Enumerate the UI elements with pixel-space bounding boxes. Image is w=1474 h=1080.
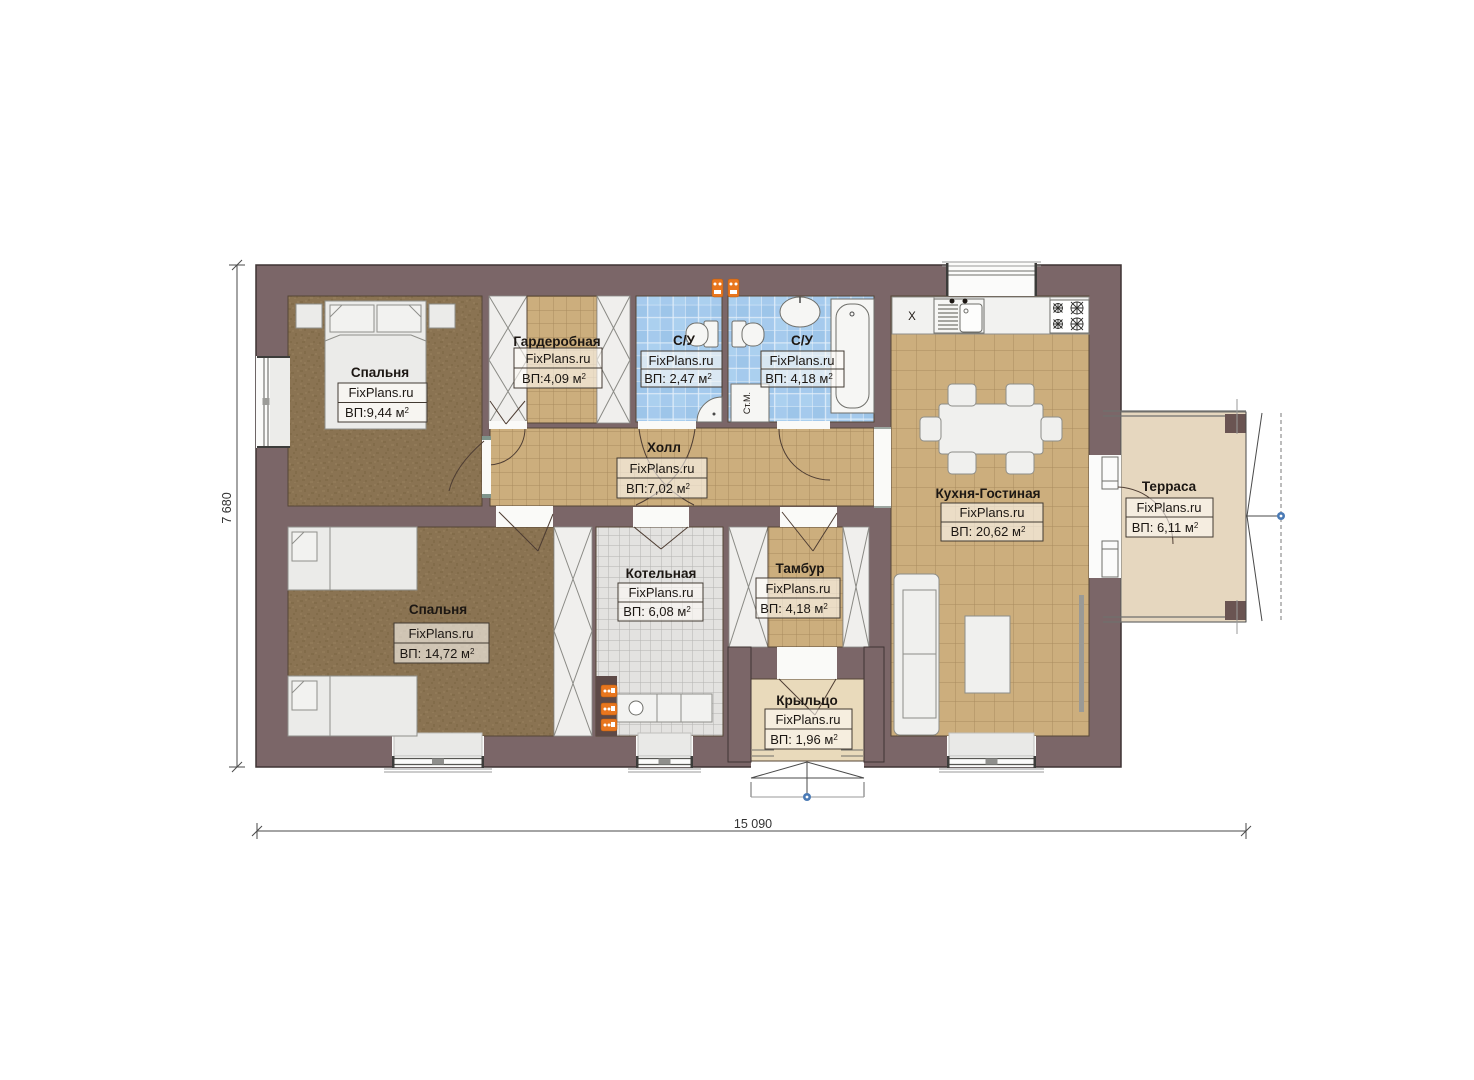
svg-text:ВП: 2,47 м2: ВП: 2,47 м2 — [644, 371, 712, 386]
svg-text:ВП: 20,62 м2: ВП: 20,62 м2 — [951, 524, 1026, 539]
svg-text:С/У: С/У — [791, 333, 814, 348]
svg-text:X: X — [908, 311, 916, 323]
svg-text:Холл: Холл — [647, 440, 681, 455]
svg-text:FixPlans.ru: FixPlans.ru — [765, 581, 830, 596]
svg-text:Котельная: Котельная — [626, 566, 697, 581]
svg-text:Ст.М.: Ст.М. — [742, 392, 752, 414]
svg-text:ВП: 14,72 м2: ВП: 14,72 м2 — [400, 646, 475, 661]
svg-text:7 680: 7 680 — [220, 492, 234, 523]
svg-text:FixPlans.ru: FixPlans.ru — [648, 353, 713, 368]
svg-text:Спальня: Спальня — [409, 602, 467, 617]
svg-text:ВП: 6,11 м2: ВП: 6,11 м2 — [1132, 520, 1199, 535]
svg-text:FixPlans.ru: FixPlans.ru — [1136, 500, 1201, 515]
svg-text:Крыльцо: Крыльцо — [776, 693, 837, 708]
svg-text:ВП: 4,18 м2: ВП: 4,18 м2 — [765, 371, 833, 386]
svg-text:Терраса: Терраса — [1142, 479, 1197, 494]
svg-text:FixPlans.ru: FixPlans.ru — [408, 626, 473, 641]
svg-text:Спальня: Спальня — [351, 365, 409, 380]
svg-text:FixPlans.ru: FixPlans.ru — [629, 461, 694, 476]
svg-text:ВП: 6,08 м2: ВП: 6,08 м2 — [623, 604, 691, 619]
svg-text:15 090: 15 090 — [734, 817, 772, 831]
svg-text:FixPlans.ru: FixPlans.ru — [348, 385, 413, 400]
svg-text:Гардеробная: Гардеробная — [513, 334, 600, 349]
svg-text:ВП: 1,96 м2: ВП: 1,96 м2 — [770, 732, 838, 747]
svg-text:FixPlans.ru: FixPlans.ru — [775, 712, 840, 727]
svg-text:ВП: 4,18 м2: ВП: 4,18 м2 — [760, 601, 828, 616]
svg-text:FixPlans.ru: FixPlans.ru — [769, 353, 834, 368]
svg-text:ВП:4,09 м2: ВП:4,09 м2 — [522, 371, 586, 386]
svg-text:FixPlans.ru: FixPlans.ru — [525, 351, 590, 366]
svg-text:ВП:9,44 м2: ВП:9,44 м2 — [345, 405, 409, 420]
svg-text:Кухня-Гостиная: Кухня-Гостиная — [936, 486, 1041, 501]
svg-text:Тамбур: Тамбур — [776, 561, 825, 576]
svg-text:FixPlans.ru: FixPlans.ru — [628, 585, 693, 600]
svg-text:ВП:7,02 м2: ВП:7,02 м2 — [626, 481, 690, 496]
svg-text:FixPlans.ru: FixPlans.ru — [959, 505, 1024, 520]
svg-text:С/У: С/У — [673, 333, 696, 348]
